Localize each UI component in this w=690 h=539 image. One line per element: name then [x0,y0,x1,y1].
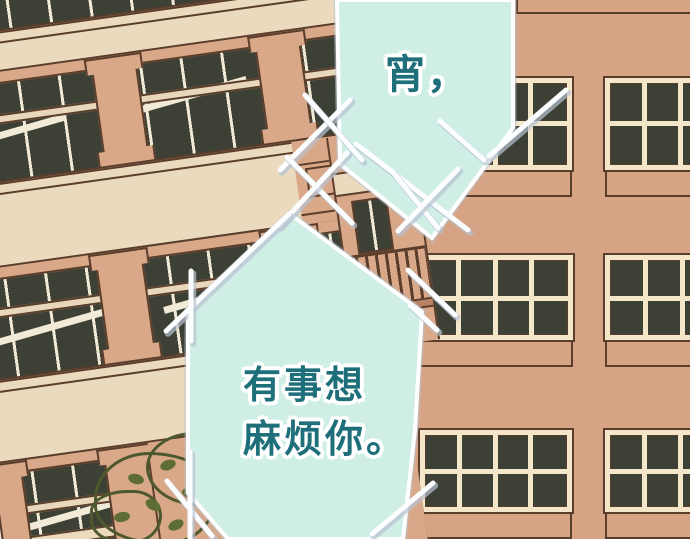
comic-panel: 宵， 有事想 麻烦你。 [0,0,690,539]
bottom-bubble-line-2: 麻烦你。 [243,412,407,466]
top-bubble-text: 宵， [352,42,502,100]
bottom-bubble-line-1: 有事想 [243,358,407,412]
bottom-bubble-text: 有事想 麻烦你。 [243,358,407,466]
